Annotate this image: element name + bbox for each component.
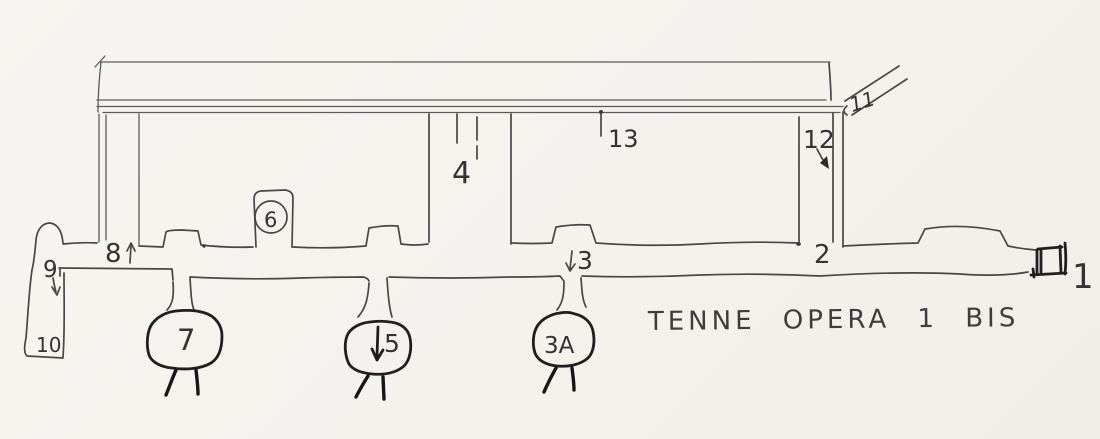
entrance-door [1031, 243, 1066, 277]
sketch-canvas: 1 2 3 3A 4 5 6 7 8 9 10 11 12 13 TENNE O… [0, 0, 1100, 439]
arrow-down-icon-5 [372, 327, 383, 360]
label-7: 7 [177, 323, 195, 357]
label-12: 12 [803, 125, 835, 154]
label-3a: 3A [544, 333, 575, 359]
left-corridor-walls [99, 114, 139, 245]
passage-top-edge [63, 225, 1036, 250]
label-3: 3 [577, 246, 593, 275]
label-2: 2 [814, 240, 831, 270]
label-6: 6 [264, 208, 277, 232]
label-5: 5 [384, 329, 400, 358]
arrow-up-icon [127, 243, 135, 263]
label-1: 1 [1072, 257, 1094, 297]
label-8: 8 [105, 239, 122, 269]
point-13-tick [599, 110, 603, 136]
sketch-sheet: 1 2 3 3A 4 5 6 7 8 9 10 11 12 13 TENNE O… [0, 0, 1100, 439]
upper-gallery-lines [97, 100, 843, 113]
dimension-line [95, 56, 831, 112]
gallery-stub-ticks [457, 114, 477, 159]
label-11: 11 [846, 86, 878, 117]
arrow-down-icon-3 [566, 251, 575, 271]
label-13: 13 [608, 125, 639, 153]
label-9: 9 [43, 257, 58, 283]
label-4: 4 [452, 156, 471, 191]
label-10: 10 [36, 333, 61, 357]
passage-bottom-edge [59, 268, 1028, 281]
caption-title: TENNE OPERA 1 BIS [647, 303, 1020, 337]
